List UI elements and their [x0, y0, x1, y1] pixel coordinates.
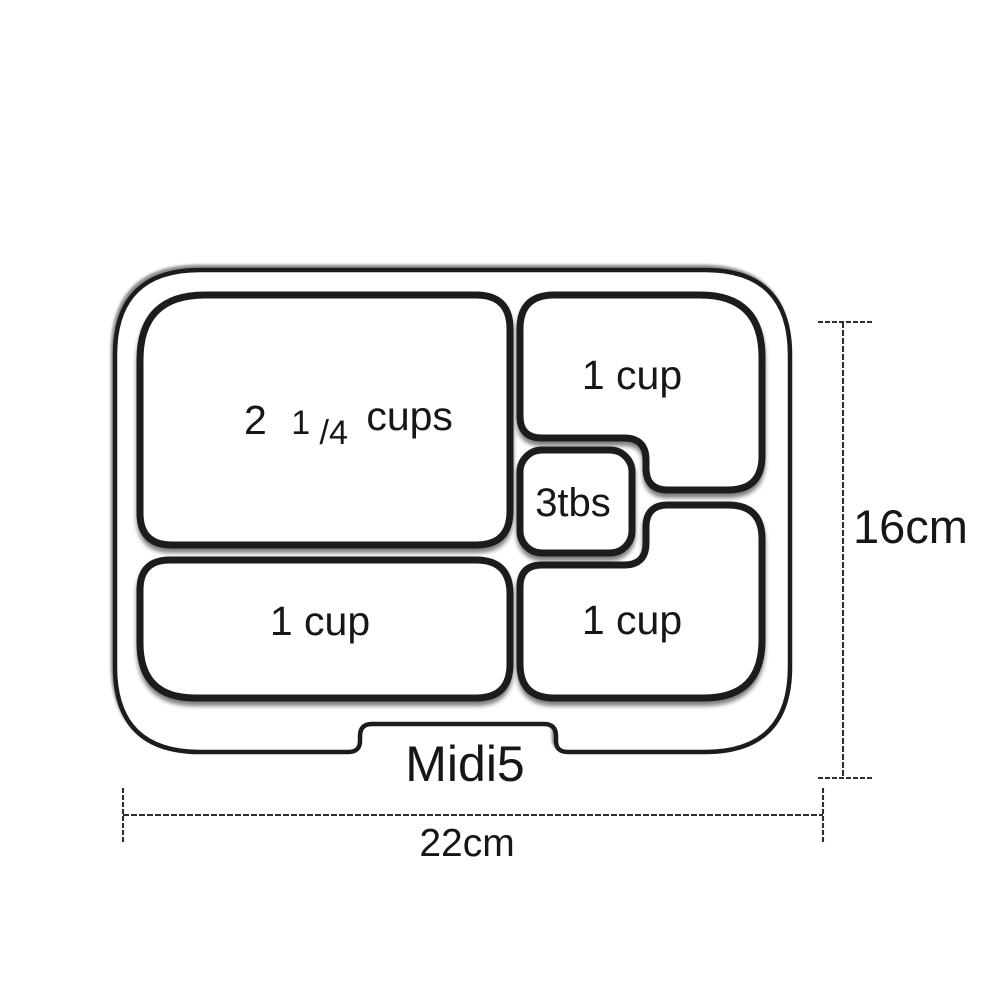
label-large-frac-den: /4 — [320, 414, 348, 452]
height-dimension-label: 16cm — [853, 500, 968, 553]
label-large-whole: 2 — [244, 397, 267, 443]
label-bottom-right-compartment: 1 cup — [582, 597, 682, 643]
width-dimension: 22cm — [123, 788, 823, 865]
label-top-right-compartment: 1 cup — [582, 352, 682, 398]
label-large-unit: cups — [366, 393, 453, 439]
product-name: Midi5 — [405, 736, 524, 792]
label-bottom-left-compartment: 1 cup — [270, 598, 370, 644]
height-dimension: 16cm — [818, 322, 968, 778]
label-large-frac-num: 1 — [291, 404, 310, 442]
tray-diagram-svg: 2 1 /4 cups 1 cup 3tbs 1 cup 1 cup Midi5… — [0, 0, 1000, 1000]
midi5-tray-diagram: 2 1 /4 cups 1 cup 3tbs 1 cup 1 cup Midi5… — [0, 0, 1000, 1000]
width-dimension-label: 22cm — [419, 822, 514, 865]
label-center-small-compartment: 3tbs — [535, 481, 611, 525]
